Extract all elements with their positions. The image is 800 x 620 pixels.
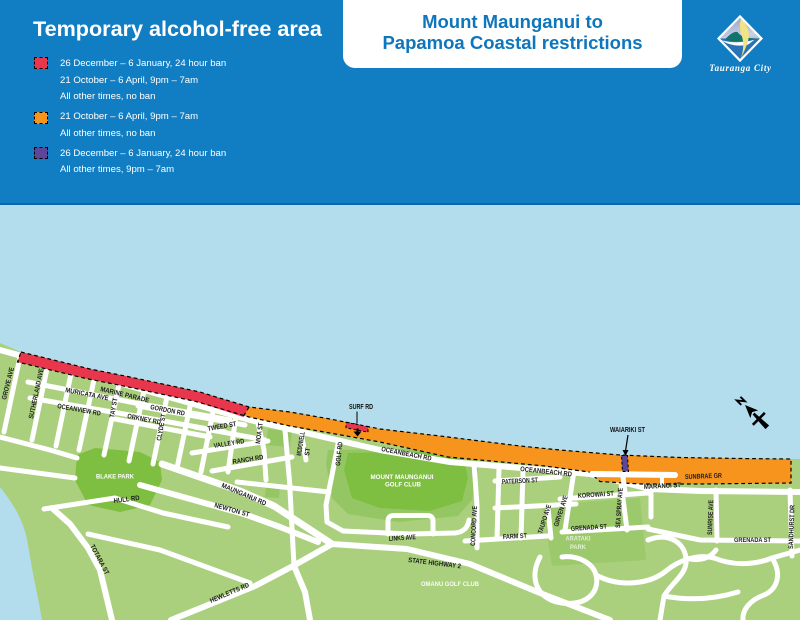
svg-text:BLAKE PARK: BLAKE PARK — [96, 474, 134, 481]
svg-text:WAIARIKI ST: WAIARIKI ST — [610, 425, 645, 434]
svg-text:FARM ST: FARM ST — [503, 533, 528, 541]
svg-text:OMANU GOLF CLUB: OMANU GOLF CLUB — [421, 581, 479, 588]
svg-text:ARATAKI: ARATAKI — [566, 536, 591, 543]
svg-text:GRENADA ST: GRENADA ST — [734, 537, 772, 544]
svg-text:SURF RD: SURF RD — [349, 402, 373, 411]
svg-text:MOUNT MAUNGANUI: MOUNT MAUNGANUI — [371, 474, 434, 481]
svg-text:GOLF CLUB: GOLF CLUB — [385, 482, 421, 489]
svg-text:PARK: PARK — [570, 544, 586, 551]
svg-text:SUNBRAE GR: SUNBRAE GR — [685, 473, 722, 481]
svg-text:SUNRISE AVE: SUNRISE AVE — [707, 499, 715, 535]
svg-text:Tauranga City: Tauranga City — [709, 63, 772, 73]
